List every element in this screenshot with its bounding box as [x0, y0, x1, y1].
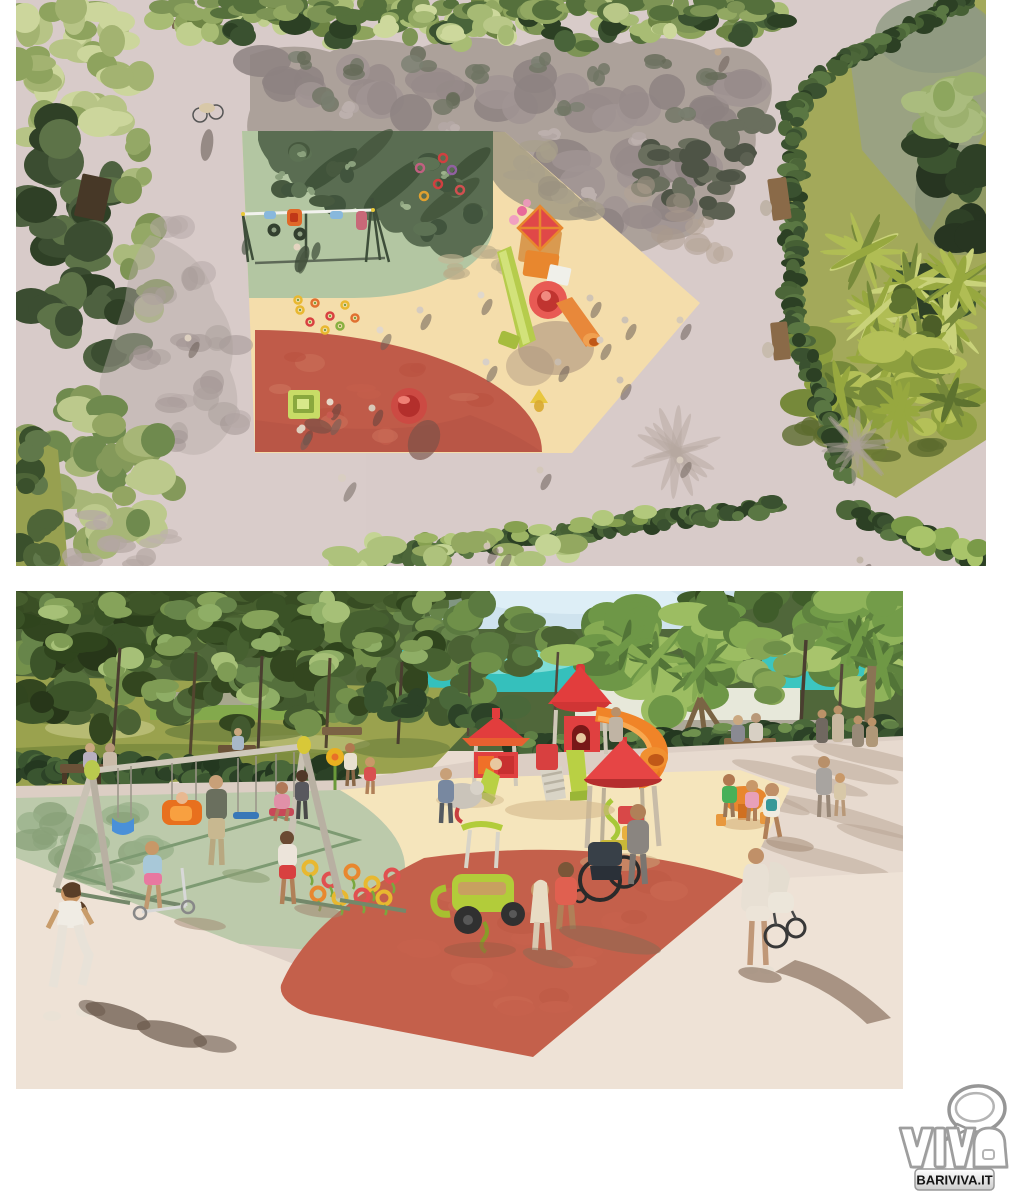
- svg-text:BARIVIVA.IT: BARIVIVA.IT: [916, 1173, 992, 1188]
